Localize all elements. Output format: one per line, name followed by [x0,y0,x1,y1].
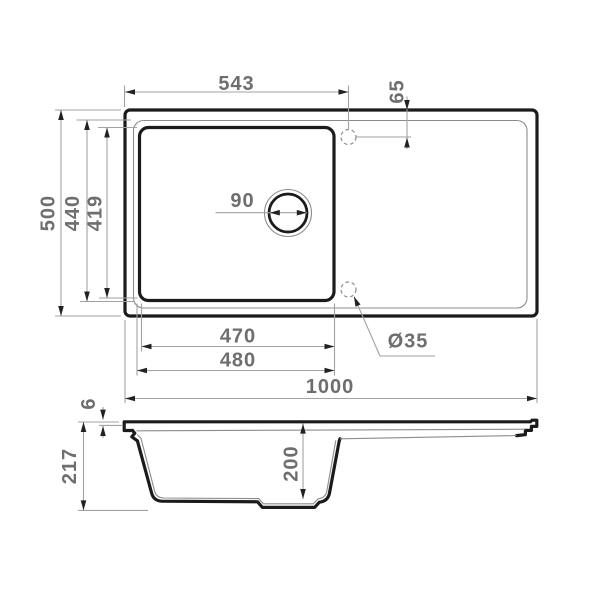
dim-500-label: 500 [38,195,60,231]
deck-underside-line [340,436,517,439]
dim-6: 6 [78,397,123,438]
side-view [124,420,537,507]
sink-technical-drawing: 543 65 500 440 419 [0,0,600,600]
dim-200-label: 200 [281,445,303,481]
sink-outer-edge [125,110,537,316]
dim-65: 65 [357,79,412,149]
dim-65-label: 65 [387,79,409,103]
dim-1000-label: 1000 [306,376,355,398]
dim-6-label: 6 [78,397,100,409]
bowl-profile [132,431,340,508]
dim-470: 470 [142,304,335,352]
dim-217-label: 217 [59,448,81,484]
side-view-dimensions: 217 6 200 [59,397,303,510]
top-view [125,110,537,316]
dim-543: 543 [125,73,349,130]
bowl-inner-line [137,435,336,504]
drainboard-surface-line [137,429,526,431]
dim-1000: 1000 [125,319,537,403]
tap-hole-bottom [341,282,356,297]
dim-200: 200 [281,424,304,499]
deck-profile [124,420,537,435]
dim-480-label: 480 [220,350,256,372]
dim-90-label: 90 [230,190,254,212]
bowl-outline [140,128,335,301]
drawing-canvas: 543 65 500 440 419 [0,0,600,600]
dim-543-label: 543 [218,73,254,95]
dim-470-label: 470 [220,326,256,348]
sink-inner-edge [134,121,528,309]
callout-tap-hole-diameter: Ø35 [354,297,435,357]
dim-419-label: 419 [85,195,107,231]
leader-line [354,297,380,357]
tap-hole-top [341,130,356,145]
dim-440-label: 440 [62,195,84,231]
dim-d35-label: Ø35 [388,331,429,353]
top-view-dimensions: 543 65 500 440 419 [38,73,538,403]
dim-419: 419 [85,128,138,299]
